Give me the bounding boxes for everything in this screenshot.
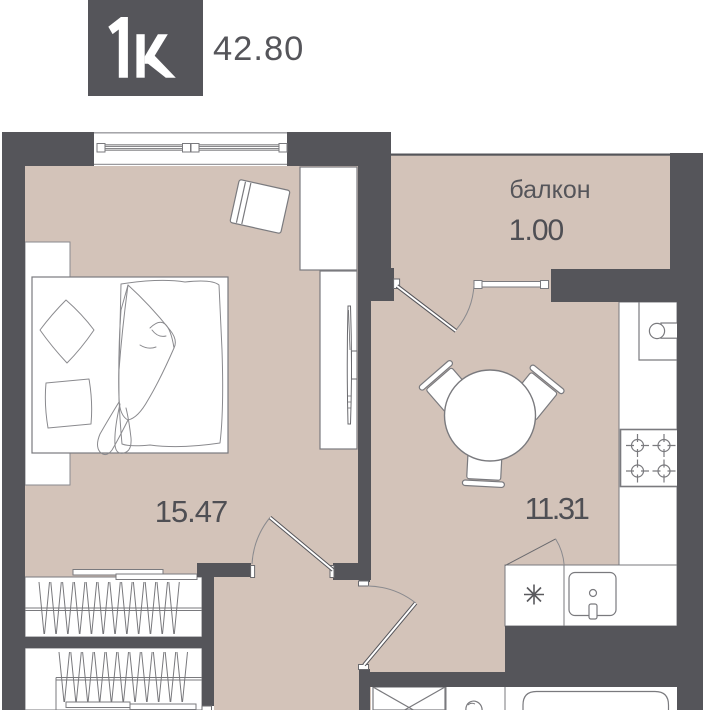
svg-text:1.00: 1.00 <box>509 214 564 247</box>
svg-text:балкон: балкон <box>509 176 590 204</box>
svg-text:11.31: 11.31 <box>525 491 589 526</box>
svg-text:15.47: 15.47 <box>155 494 228 529</box>
svg-text:42.80: 42.80 <box>213 30 304 68</box>
